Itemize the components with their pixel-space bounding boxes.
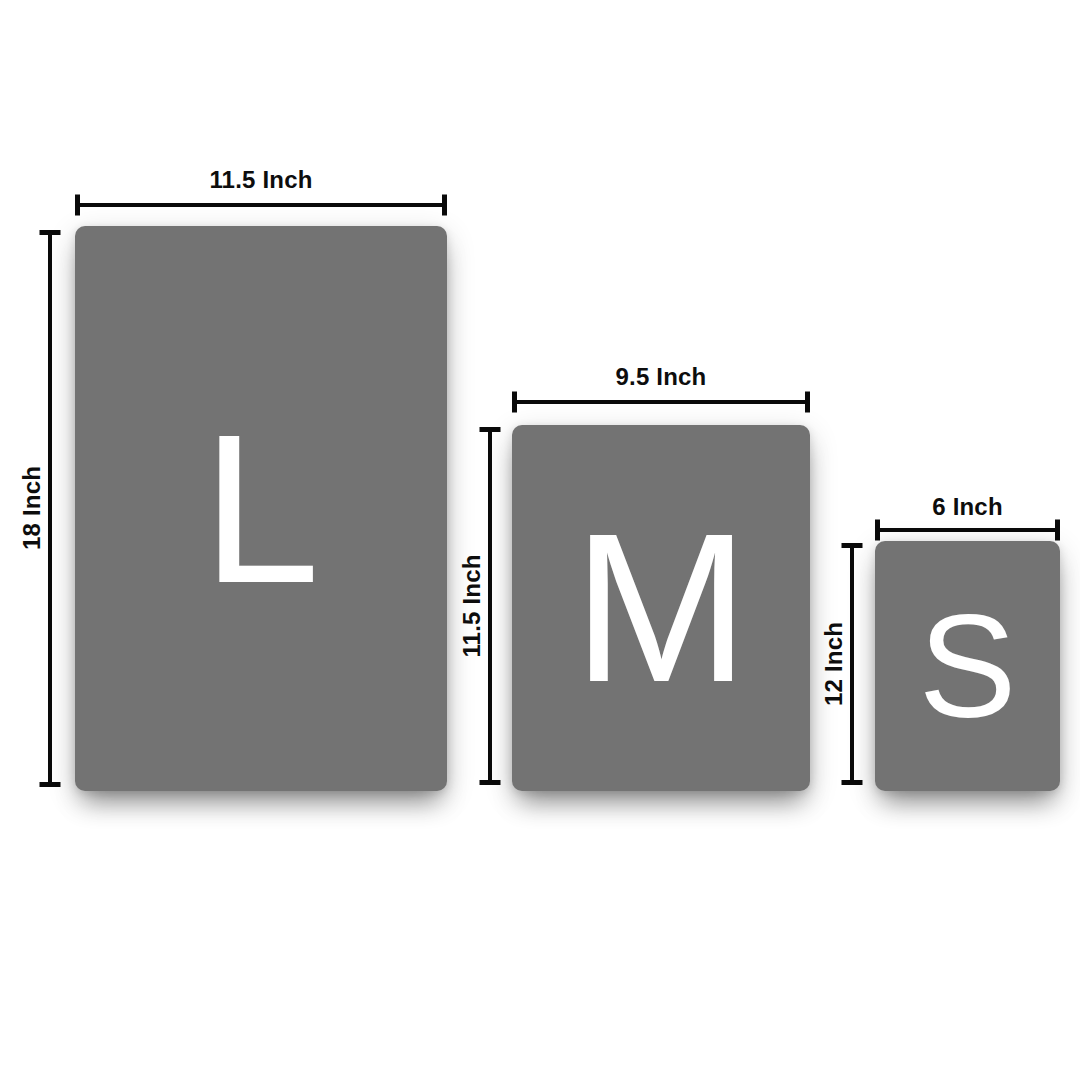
size-panel-large: L: [75, 226, 447, 791]
height-dimension-line-large: [48, 230, 52, 787]
width-dimension-line-large: [75, 203, 447, 207]
height-label-medium: 11.5 Inch: [458, 554, 486, 657]
size-panel-medium: M: [512, 425, 810, 791]
size-comparison-diagram: 11.5 Inch 18 Inch L 9.5 Inch 11.5 Inch M…: [0, 0, 1080, 1080]
width-dimension-line-small: [875, 528, 1060, 532]
size-panel-small: S: [875, 541, 1060, 791]
size-letter-medium: M: [573, 502, 750, 714]
height-dimension-line-small: [850, 543, 854, 785]
height-label-small: 12 Inch: [820, 622, 848, 706]
width-dimension-line-medium: [512, 400, 810, 404]
width-label-large: 11.5 Inch: [75, 166, 447, 194]
width-label-small: 6 Inch: [875, 493, 1060, 521]
size-letter-large: L: [202, 403, 320, 615]
width-label-medium: 9.5 Inch: [512, 363, 810, 391]
height-dimension-line-medium: [488, 427, 492, 785]
height-label-large: 18 Inch: [18, 466, 46, 550]
size-letter-small: S: [918, 593, 1016, 740]
